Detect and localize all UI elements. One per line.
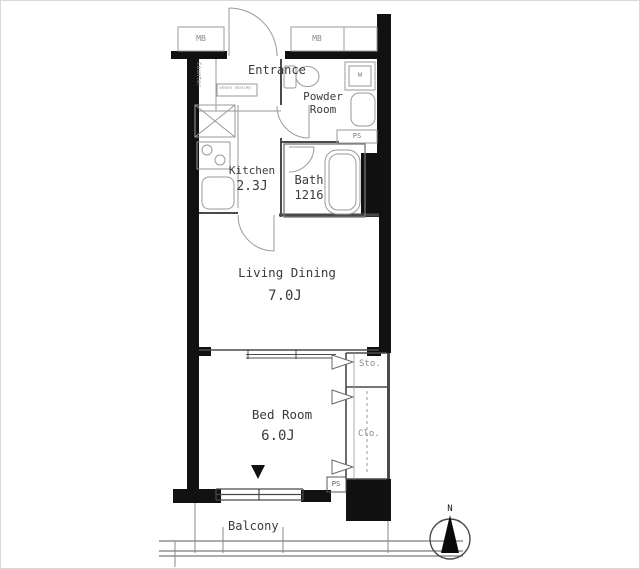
wall-right-mid (379, 217, 391, 353)
room-label-kitchen: Kitchen (229, 165, 275, 178)
bathtub-icon (325, 150, 360, 214)
clo-folding-door-bottom-icon (332, 460, 353, 474)
stove-burner-1 (202, 145, 212, 155)
powder-room-line1: Powder (303, 91, 343, 104)
storage-label: Sto. (359, 359, 381, 369)
sto-folding-door-icon (332, 355, 353, 369)
window-frame (216, 489, 303, 500)
powder-room-line2: Room (303, 104, 343, 117)
balcony-railing (159, 503, 463, 567)
stove-icon (197, 142, 230, 169)
washer-label: W (358, 71, 362, 79)
room-label-bath: Bath (295, 174, 324, 188)
room-label-powder-room: Powder Room (303, 91, 343, 116)
room-size-bath: 1216 (295, 189, 324, 203)
room-label-balcony: Balcony (228, 520, 279, 534)
room-size-bed-room: 6.0J (261, 428, 295, 444)
fridge-space-cross (195, 105, 235, 137)
room-label-bed-room: Bed Room (252, 408, 312, 422)
wall-top-right (285, 51, 391, 59)
clo-folding-door-top-icon (332, 390, 353, 404)
wall-bottom-right-block (346, 479, 391, 521)
pipe-shaft-lower-label: PS (332, 480, 340, 488)
wall-bottom-left-flange (173, 489, 221, 503)
counter-label: Counter (194, 62, 201, 120)
meter-box-right-label: MB (312, 34, 322, 43)
bath-door-arc (289, 147, 314, 172)
entrance-door-arc (229, 8, 277, 56)
partition-left-cap (197, 347, 211, 356)
floor-plan: Entrance Shoes Box(W) Counter Powder Roo… (0, 0, 640, 569)
partition-right-cap (367, 347, 381, 356)
floor-plan-drawing (1, 1, 639, 568)
bathtub-icon-inner (329, 154, 356, 210)
kitchen-sink-icon (202, 177, 234, 209)
pipe-shaft-upper-label: PS (353, 132, 361, 140)
stove-burner-2 (215, 155, 225, 165)
sliding-door-lines (246, 355, 336, 359)
window-center-marker (251, 465, 265, 479)
balcony-rail-lines (159, 541, 463, 556)
closet-label: Clo. (358, 429, 380, 439)
vanity-sink-icon (351, 93, 375, 126)
compass (430, 515, 470, 559)
room-label-entrance: Entrance (248, 64, 306, 78)
ld-door-arc (238, 215, 274, 251)
room-size-living-dining: 7.0J (268, 288, 302, 304)
room-label-living-dining: Living Dining (238, 266, 336, 280)
meter-box-right (291, 27, 377, 51)
wall-right-upper (377, 14, 391, 159)
compass-north-label: N (447, 504, 452, 514)
room-size-kitchen: 2.3J (236, 180, 267, 195)
shoes-box-label: Shoes Box(W) (219, 86, 255, 91)
meter-box-left-label: MB (196, 34, 206, 43)
